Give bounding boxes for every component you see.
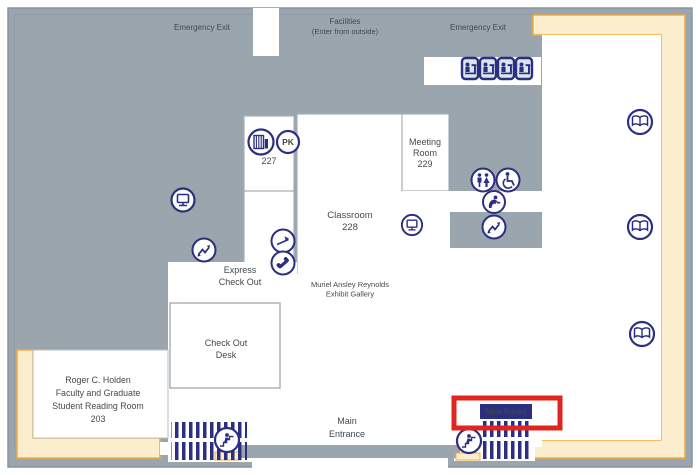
classroom-228-label: 228 bbox=[342, 222, 358, 233]
express-checkout-label: Check Out bbox=[219, 277, 262, 287]
facilities-sublabel: (Enter from outside) bbox=[312, 27, 379, 36]
top-door-opening bbox=[253, 8, 279, 56]
checkout-desk-label: Check Out bbox=[205, 338, 248, 348]
restroom-icon bbox=[472, 169, 495, 192]
emergency-exit-left-label: Emergency Exit bbox=[174, 23, 231, 32]
new-books-label[interactable]: New Books bbox=[486, 408, 526, 417]
telephone-icon bbox=[272, 252, 295, 275]
workstation-icon bbox=[462, 58, 478, 79]
emergency-exit-right-label: Emergency Exit bbox=[450, 23, 507, 32]
facilities-label: Facilities bbox=[329, 17, 360, 26]
main-entrance-label: Entrance bbox=[329, 429, 365, 439]
library-floor-map-page: PK Emergency Exit Facilities (Enter from… bbox=[0, 0, 700, 475]
open-book-icon bbox=[630, 322, 654, 346]
meeting-room-label: Meeting bbox=[409, 137, 441, 147]
workstation-icon bbox=[498, 58, 514, 79]
open-book-icon bbox=[628, 215, 652, 239]
computer-icon bbox=[402, 215, 422, 235]
entrance-wall-band bbox=[240, 445, 460, 458]
block-right-of-meeting-room bbox=[449, 85, 542, 191]
wheelchair-access-icon bbox=[497, 169, 520, 192]
reading-room-label: Roger C. Holden bbox=[65, 375, 131, 385]
room-227-label: 227 bbox=[261, 156, 276, 166]
book-stack-icon bbox=[249, 130, 274, 155]
reading-room-label: Faculty and Graduate bbox=[56, 388, 141, 398]
stairs-direction-icon bbox=[483, 216, 506, 239]
open-book-icon bbox=[628, 110, 652, 134]
stairs-left-gap bbox=[160, 442, 168, 455]
computer-icon bbox=[172, 189, 195, 212]
meeting-room-label: Room bbox=[413, 148, 437, 158]
checkout-desk-label: Desk bbox=[216, 350, 237, 360]
restroom-corridor bbox=[402, 191, 543, 212]
classroom-228-label: Classroom bbox=[327, 210, 372, 221]
pk-icon: PK bbox=[277, 131, 299, 153]
express-checkout-label: Express bbox=[224, 265, 257, 275]
floor-map-svg: PK Emergency Exit Facilities (Enter from… bbox=[0, 0, 700, 475]
exhibit-gallery-label: Exhibit Gallery bbox=[326, 290, 375, 299]
main-entrance-label: Main bbox=[337, 416, 357, 426]
classroom-228-room bbox=[297, 114, 403, 275]
stairs-icon bbox=[457, 429, 481, 453]
meeting-room-label: 229 bbox=[417, 159, 432, 169]
stairs-icon bbox=[215, 428, 239, 452]
workstation-icon bbox=[480, 58, 496, 79]
stairs-direction-icon bbox=[193, 239, 216, 262]
pk-icon-label: PK bbox=[282, 137, 295, 147]
drinking-fountain-icon bbox=[483, 191, 505, 213]
new-books-shelf[interactable]: New Books bbox=[480, 404, 532, 419]
exhibit-gallery-label: Muriel Ansley Reynolds bbox=[311, 280, 389, 289]
main-entrance-opening bbox=[252, 458, 448, 472]
book-drop-icon bbox=[272, 230, 295, 253]
reading-room-label: Student Reading Room bbox=[52, 401, 143, 411]
reading-room-label: 203 bbox=[91, 414, 106, 424]
workstation-icon bbox=[516, 58, 532, 79]
